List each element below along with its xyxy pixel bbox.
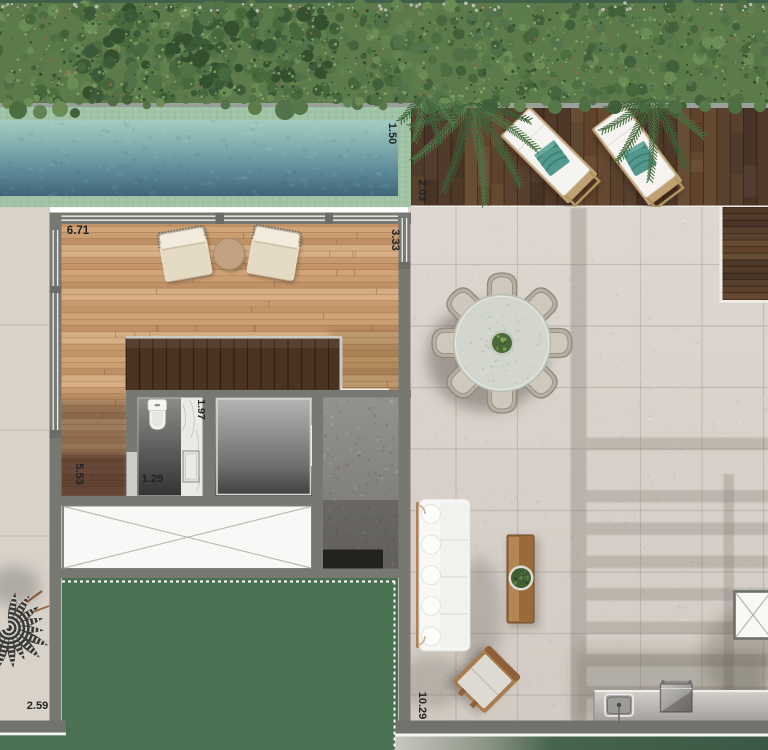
svg-text:1.29: 1.29 <box>142 473 163 485</box>
svg-text:6.71: 6.71 <box>67 225 90 237</box>
svg-text:10.29: 10.29 <box>416 692 428 720</box>
svg-text:3.33: 3.33 <box>389 229 401 250</box>
svg-text:2.03: 2.03 <box>416 180 428 201</box>
svg-text:2.59: 2.59 <box>27 700 48 712</box>
svg-text:1.97: 1.97 <box>195 399 207 420</box>
svg-text:1.50: 1.50 <box>386 123 398 144</box>
svg-text:5.53: 5.53 <box>73 463 85 484</box>
